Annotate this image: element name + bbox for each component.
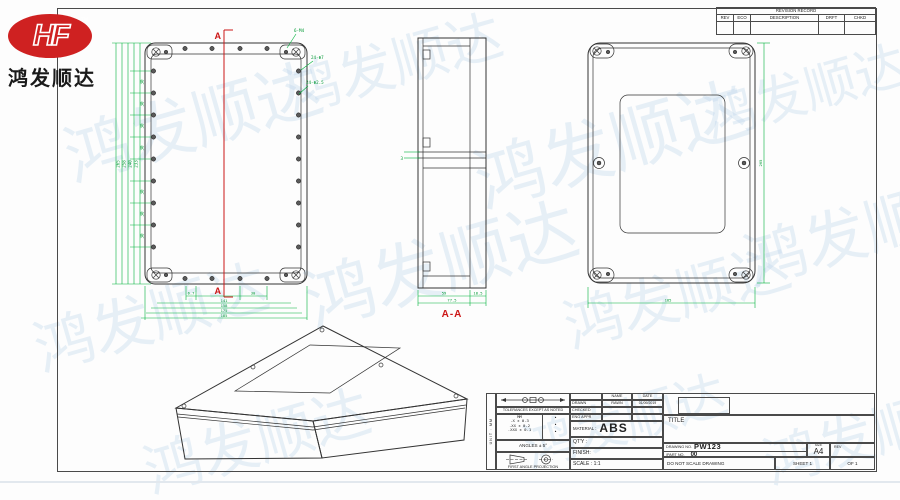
dim-lid-gap: 3 <box>400 156 403 161</box>
eng-appr-date <box>632 414 663 421</box>
dim-height-total: 258 <box>122 160 127 168</box>
rev-cell: REV <box>830 443 875 457</box>
dim-spacing: 30 <box>140 189 145 195</box>
tolerance-table: MM .X ± 0.3 .XX ± 0.2 .XXX ± 0.1 • • • <box>496 414 570 440</box>
eng-appr-label: ENG APPR <box>570 414 602 421</box>
dim-height-total: 240 <box>128 160 133 168</box>
sheet-number: SHEET 1 <box>775 457 830 470</box>
dim-height-total: 233 <box>134 160 139 168</box>
section-label-bottom: A <box>215 286 222 296</box>
customer-logo-box <box>678 397 730 414</box>
isometric-view <box>176 326 467 459</box>
approvals-date-header: DATE <box>632 393 663 400</box>
tolerance-values: MM .X ± 0.3 .XX ± 0.2 .XXX ± 0.1 <box>497 415 543 439</box>
title-block: UNIT : MM TOLERANCES EXCEPT AS NOTED MM … <box>486 393 876 470</box>
drawn-date: 01/09/2019 <box>632 400 663 407</box>
dim-spacing: 30 <box>140 145 145 151</box>
front-view <box>145 43 307 284</box>
drawing-sheet: 鸿发顺达 鸿发顺达 鸿发顺达 鸿发顺达 鸿发顺达 鸿发顺达 鸿发顺达 鸿发顺达 … <box>0 0 900 500</box>
dim-width-total: 185 <box>221 313 228 318</box>
dimension-style-symbol-cell <box>496 393 570 407</box>
section-cut-line: A A <box>215 30 234 297</box>
drawn-label: DRAWN <box>570 400 602 407</box>
title-block-side-strip: UNIT : MM <box>486 393 496 470</box>
finish-cell: FINISH: <box>570 448 663 459</box>
drawn-name: RAWN <box>602 400 632 407</box>
callout-hole-large: 24-Φ7 <box>311 55 324 60</box>
section-label-top: A <box>215 31 222 41</box>
first-angle-projection-icon <box>498 454 568 465</box>
section-view-label: A-A <box>442 309 463 320</box>
callout-hole-small: 24-Φ2.5 <box>306 80 324 85</box>
material-label: MATERIAL : <box>573 427 596 432</box>
dim-back-height: 265 <box>758 160 763 167</box>
drawing-number-cell: DRAWING NO. PW123 /PART NO. 00 <box>663 443 807 457</box>
size-cell: SIZE A4 <box>807 443 830 457</box>
dim-spacing: 30 <box>140 211 145 217</box>
size-value: A4 <box>808 448 829 456</box>
dim-spacing: 30 <box>140 101 145 107</box>
material-value: ABS <box>599 422 627 436</box>
dim-spacing: 30 <box>140 79 145 85</box>
projection-cell: FIRST ANGLE PROJECTION <box>496 452 570 470</box>
tolerance-bullets: • • • <box>542 415 569 439</box>
dim-depth-body: 59 <box>442 291 447 296</box>
qty-cell: QT'Y : <box>570 437 663 448</box>
dim-back-width: 185 <box>665 298 672 303</box>
title-cell: TITLE <box>663 415 875 443</box>
callout-thread: 6-M4 <box>294 28 305 33</box>
approvals-name-header: NAME <box>602 393 632 400</box>
angles-tolerance: ANGLES ± 5° <box>496 440 570 452</box>
title-block-top-strip <box>663 393 875 415</box>
tolerance-bullet: • <box>542 429 569 436</box>
checked-label: CHECKED <box>570 407 602 414</box>
side-view-dimensions: 3 59 18.5 77.5 A-A <box>400 152 486 320</box>
sheet-of: OF 1 <box>830 457 875 470</box>
material-cell: MATERIAL : ABS <box>570 421 663 437</box>
dim-spacing: 30 <box>140 233 145 239</box>
side-section-view <box>418 38 486 288</box>
dim-height-total: 265 <box>116 160 121 168</box>
eng-appr-name <box>602 414 632 421</box>
back-view <box>588 43 755 283</box>
do-not-scale-note: DO NOT SCALE DRAWING <box>663 457 775 470</box>
scale-cell: SCALE : 1:1 <box>570 459 663 470</box>
tolerance-bullet: • <box>542 415 569 422</box>
dim-depth-total: 77.5 <box>447 298 456 303</box>
projection-label: FIRST ANGLE PROJECTION <box>497 465 569 469</box>
drawing-no-value: PW123 <box>694 443 721 452</box>
dim-depth-lid: 18.5 <box>473 291 482 296</box>
tolerance-row: .XXX ± 0.1 <box>497 428 542 432</box>
dimension-style-icon <box>498 394 568 406</box>
tolerance-bullet: • <box>542 422 569 429</box>
dim-segment: 30 <box>251 291 256 296</box>
dim-spacing: 30 <box>140 123 145 129</box>
unit-note: UNIT : MM <box>489 418 493 444</box>
checked-date <box>632 407 663 414</box>
drawing-no-label: DRAWING NO. <box>666 445 692 449</box>
approvals-blank-header <box>570 393 602 400</box>
dim-segment: 6.7 <box>188 291 195 296</box>
tolerance-header: TOLERANCES EXCEPT AS NOTED <box>496 407 570 414</box>
checked-name <box>602 407 632 414</box>
